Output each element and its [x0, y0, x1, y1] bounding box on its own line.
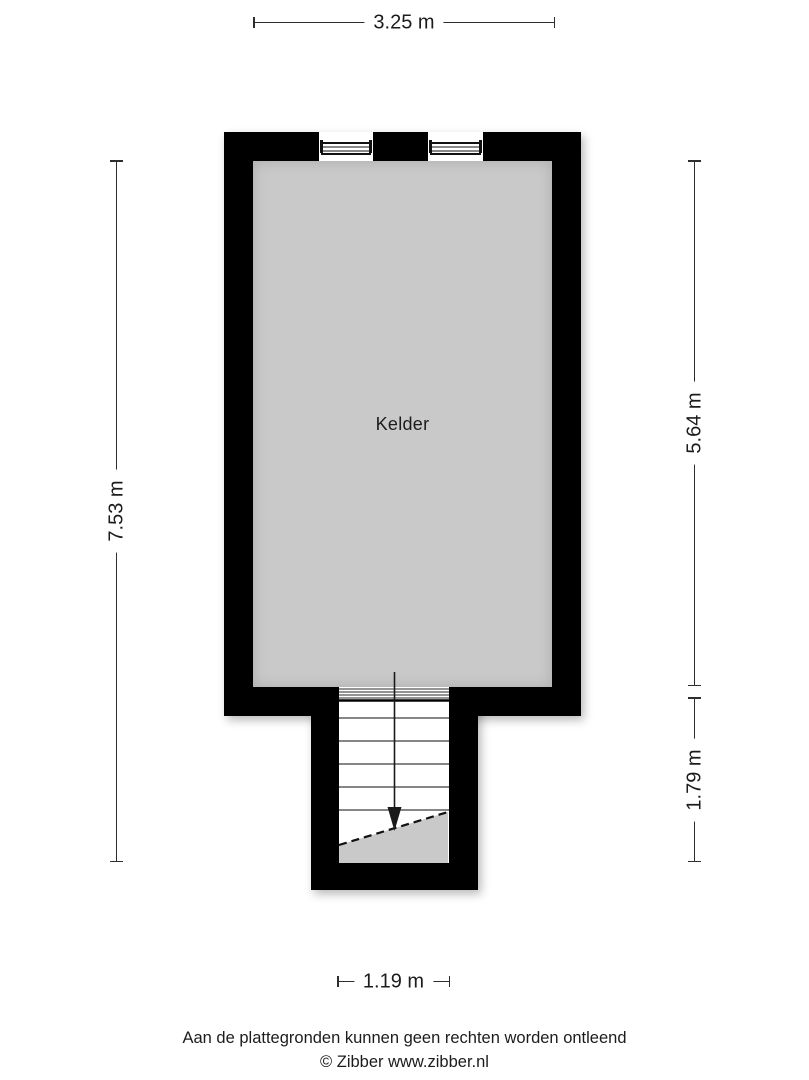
dimension-left-label: 7.53 m	[105, 469, 128, 552]
dimension-right-upper: 5.64 m	[688, 160, 701, 686]
dimension-tick	[337, 976, 339, 987]
dimension-right-lower: 1.79 m	[688, 697, 701, 862]
window-frame-cap	[479, 140, 482, 153]
dimension-right-lower-label: 1.79 m	[683, 738, 706, 821]
dimension-tick	[554, 17, 556, 28]
footer-disclaimer: Aan de plattegronden kunnen geen rechten…	[0, 1026, 809, 1050]
window-icon	[321, 142, 371, 155]
footer: Aan de plattegronden kunnen geen rechten…	[0, 1026, 809, 1074]
window-frame-cap	[369, 140, 372, 153]
window-icon	[430, 142, 481, 155]
dimension-top: 3.25 m	[253, 16, 555, 29]
dimension-bottom: 1.19 m	[337, 975, 450, 988]
room-label: Kelder	[376, 414, 430, 435]
room-kelder: Kelder	[253, 161, 552, 687]
footer-copyright: © Zibber www.zibber.nl	[0, 1050, 809, 1074]
dimension-bottom-label: 1.19 m	[354, 970, 433, 993]
window-frame-cap	[320, 140, 323, 153]
dimension-tick	[688, 160, 701, 162]
dimension-tick	[449, 976, 451, 987]
floorplan-canvas: 3.25 m Kelder	[0, 0, 809, 1080]
dimension-tick	[110, 861, 123, 863]
window-opening	[428, 132, 483, 161]
dimension-right-upper-label: 5.64 m	[683, 381, 706, 464]
staircase	[339, 665, 449, 863]
dimension-tick	[688, 697, 701, 699]
dimension-tick	[688, 685, 701, 687]
dimension-top-label: 3.25 m	[364, 11, 443, 34]
dimension-left: 7.53 m	[110, 160, 123, 862]
window-opening	[319, 132, 373, 161]
dimension-tick	[110, 160, 123, 162]
window-frame-cap	[429, 140, 432, 153]
dimension-tick	[253, 17, 255, 28]
dimension-tick	[688, 861, 701, 863]
